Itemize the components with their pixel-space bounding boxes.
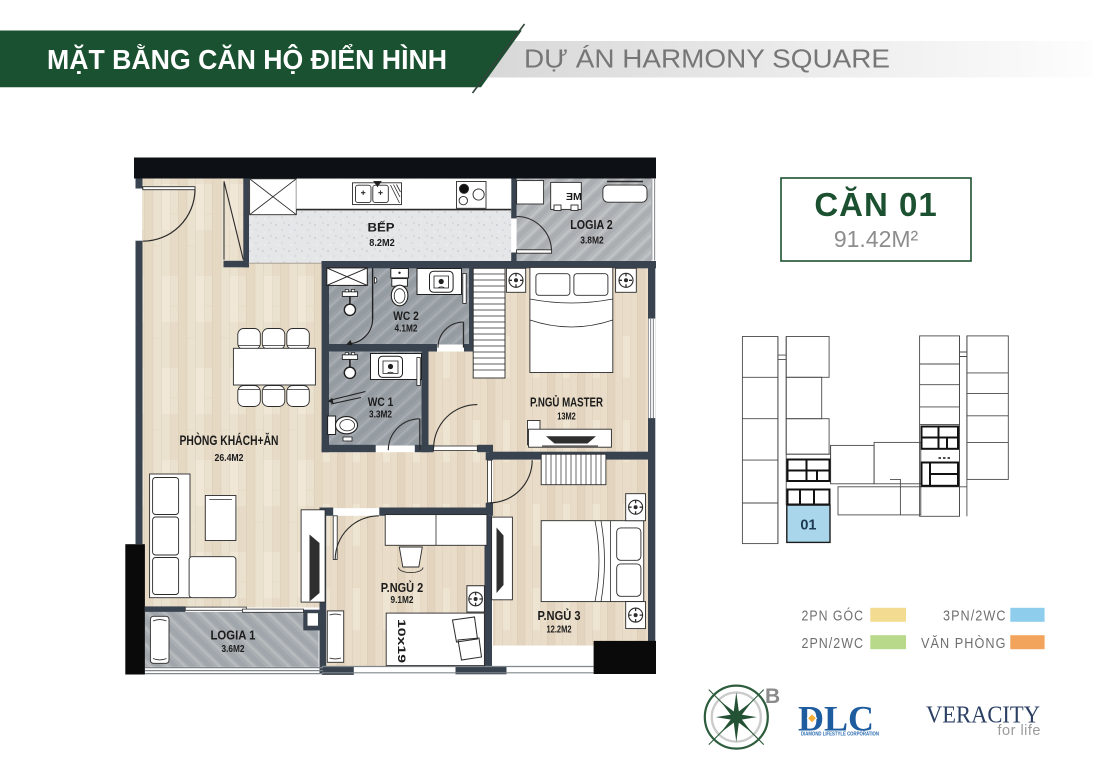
svg-text:01: 01: [800, 518, 816, 534]
svg-text:B: B: [765, 685, 780, 708]
svg-text:WC 1: WC 1: [368, 395, 394, 409]
svg-text:BẾP: BẾP: [368, 220, 395, 235]
svg-text:91.42M²: 91.42M²: [834, 226, 919, 252]
svg-text:LOGIA 1: LOGIA 1: [211, 629, 256, 643]
svg-text:MẶT BẰNG CĂN HỘ ĐIỂN HÌNH: MẶT BẰNG CĂN HỘ ĐIỂN HÌNH: [47, 43, 447, 75]
svg-text:13M2: 13M2: [557, 411, 576, 423]
svg-text:P.NGỦ MASTER: P.NGỦ MASTER: [530, 395, 603, 410]
svg-text:3PN/2WC: 3PN/2WC: [943, 609, 1007, 625]
svg-text:3.8M2: 3.8M2: [580, 235, 604, 247]
svg-text:3.3M2: 3.3M2: [369, 410, 392, 421]
svg-text:DỰ ÁN HARMONY SQUARE: DỰ ÁN HARMONY SQUARE: [524, 44, 890, 74]
svg-text:ƎM: ƎM: [566, 191, 582, 203]
svg-text:CĂN 01: CĂN 01: [814, 186, 937, 223]
svg-text:12.2M2: 12.2M2: [547, 625, 572, 636]
svg-text:WC 2: WC 2: [393, 309, 419, 323]
svg-text:P.NGỦ 3: P.NGỦ 3: [538, 608, 581, 623]
svg-text:for life: for life: [998, 723, 1042, 739]
svg-text:LOGIA 2: LOGIA 2: [570, 218, 613, 232]
svg-text:9.1M2: 9.1M2: [391, 595, 414, 606]
svg-text:2PN/2WC: 2PN/2WC: [802, 636, 865, 652]
svg-text:DIAMOND LIFESTYLE CORPORATION: DIAMOND LIFESTYLE CORPORATION: [801, 732, 879, 738]
svg-text:3.6M2: 3.6M2: [222, 643, 245, 655]
svg-text:PHÒNG KHÁCH+ĂN: PHÒNG KHÁCH+ĂN: [180, 433, 279, 448]
svg-text:4.1M2: 4.1M2: [395, 324, 418, 335]
svg-text:8.2M2: 8.2M2: [369, 238, 395, 249]
svg-text:2PN GÓC: 2PN GÓC: [802, 608, 865, 625]
svg-text:P.NGỦ 2: P.NGỦ 2: [381, 580, 424, 595]
svg-text:26.4M2: 26.4M2: [215, 452, 244, 464]
svg-text:VĂN PHÒNG: VĂN PHÒNG: [921, 635, 1007, 652]
svg-text:10x19: 10x19: [395, 619, 407, 663]
